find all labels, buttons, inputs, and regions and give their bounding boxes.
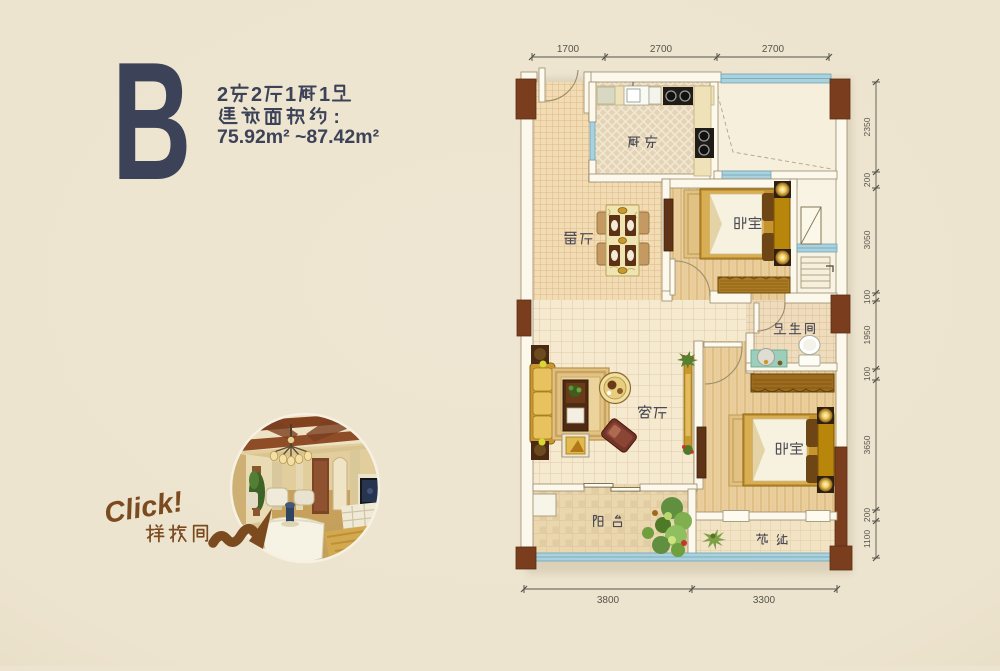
svg-text:2350: 2350 [862, 117, 872, 136]
svg-text:3650: 3650 [862, 435, 872, 454]
svg-text:200: 200 [862, 173, 872, 187]
svg-text:2: 2 [217, 84, 228, 106]
svg-text:1950: 1950 [862, 325, 872, 344]
svg-text:2700: 2700 [762, 44, 785, 55]
svg-text:100: 100 [862, 367, 872, 381]
svg-text:1: 1 [285, 84, 296, 106]
svg-text:1700: 1700 [557, 44, 580, 55]
svg-text::: : [334, 107, 340, 128]
svg-text:200: 200 [862, 508, 872, 522]
svg-text:3050: 3050 [862, 230, 872, 249]
svg-text:2: 2 [251, 84, 262, 106]
svg-text:B: B [112, 28, 191, 216]
svg-text:1100: 1100 [862, 530, 872, 549]
svg-text:3300: 3300 [753, 595, 776, 606]
svg-text:3800: 3800 [597, 595, 620, 606]
svg-text:75.92m² ~87.42m²: 75.92m² ~87.42m² [217, 126, 380, 148]
svg-text:1: 1 [319, 84, 330, 106]
svg-text:2700: 2700 [650, 44, 673, 55]
svg-text:100: 100 [862, 290, 872, 304]
